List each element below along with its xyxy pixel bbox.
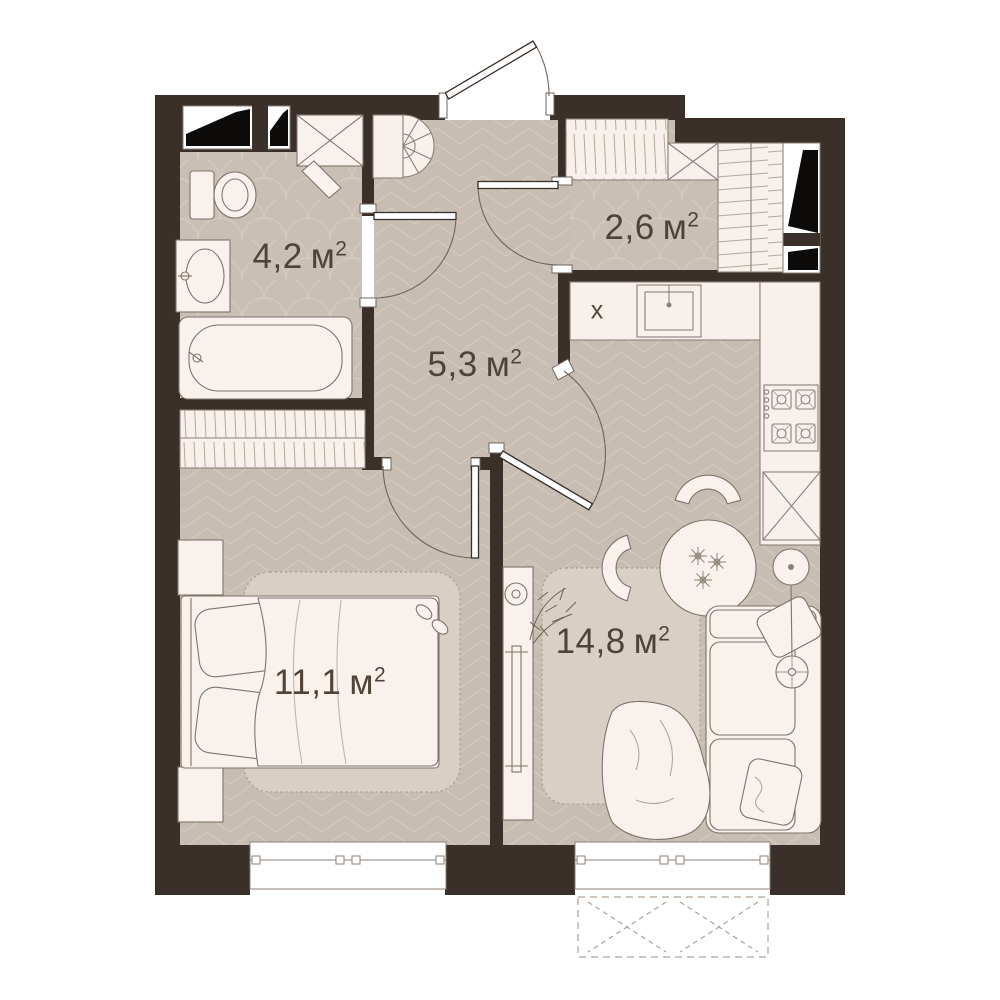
living-window-tick-2 — [660, 856, 668, 864]
wall-top-right — [675, 118, 845, 143]
wall-bath-bottom — [180, 398, 374, 411]
area-value: 2,6 — [605, 208, 655, 247]
hall-cabinet — [373, 115, 403, 178]
entry-door-arc — [535, 44, 549, 96]
bedroom-window-tick-2 — [336, 856, 344, 864]
wall-top-mid — [550, 95, 683, 120]
area-exponent: 2 — [374, 663, 386, 686]
area-exponent: 2 — [658, 622, 670, 645]
area-unit: м — [634, 622, 659, 661]
bedroom-window-tick-1 — [252, 856, 260, 864]
bedroom-door-leaf — [472, 466, 479, 558]
floor-plan-drawing — [0, 0, 1000, 1000]
wall-bottom-left — [155, 845, 250, 895]
area-value: 14,8 — [556, 622, 626, 661]
decor-disc-center — [512, 590, 520, 598]
wall-left — [155, 95, 180, 895]
bath-jamb-top — [360, 204, 376, 213]
area-exponent: 2 — [510, 345, 522, 368]
dining-table — [660, 520, 756, 616]
wall-bottom-mid — [445, 845, 575, 895]
wall-divider — [490, 452, 503, 845]
nightstand-bottom — [178, 767, 223, 822]
hanging-rail-hatch — [566, 119, 668, 180]
shaft-divider-2 — [783, 233, 820, 246]
entry-door-leaf — [445, 41, 536, 99]
living-window-tick-1 — [577, 856, 585, 864]
room-area-label-bedroom: 11,1м2 — [274, 663, 386, 703]
toilet-bowl-inner — [222, 179, 248, 211]
area-unit: м — [486, 345, 511, 384]
toilet-tank — [190, 171, 214, 219]
bedroom-window — [250, 842, 446, 889]
room-area-label-hallway: 5,3м2 — [428, 345, 523, 385]
living-window-tick-4 — [760, 856, 768, 864]
bath-jamb-bottom — [360, 298, 376, 307]
sink-faucet-knob — [667, 303, 672, 308]
balcony-outline — [578, 897, 768, 957]
sofa-pillow-bottom — [738, 757, 803, 827]
room-area-label-living: 14,8м2 — [556, 622, 671, 662]
floor-lamp-bulb — [788, 564, 794, 570]
area-value: 11,1 — [274, 663, 342, 702]
room-area-label-wardrobe: 2,6м2 — [605, 208, 700, 248]
area-value: 5,3 — [428, 345, 478, 384]
bedroom-window-tick-4 — [436, 856, 444, 864]
floor-lamp-base-center — [789, 669, 796, 676]
entry-jamb-right — [546, 93, 554, 115]
living-window — [575, 842, 770, 889]
wall-bath-upper — [362, 120, 374, 216]
shaft-divider-1 — [252, 104, 268, 151]
bedroom-window-tick-3 — [352, 856, 360, 864]
room-area-label-bathroom: 4,2м2 — [253, 237, 348, 277]
area-exponent: 2 — [335, 237, 347, 260]
floor-plan: 4,2м2 2,6м2 5,3м2 11,1м2 14,8м2 x — [0, 0, 1000, 1000]
wardrobe-jamb-bottom — [552, 265, 572, 273]
area-unit: м — [663, 208, 688, 247]
fridge-spot-mark: x — [591, 297, 604, 326]
nightstand-top — [178, 540, 223, 595]
area-value: 4,2 — [253, 237, 303, 276]
wall-bottom-right — [770, 845, 845, 895]
entry-jamb-left — [439, 93, 447, 118]
area-exponent: 2 — [687, 208, 699, 231]
living-window-tick-3 — [676, 856, 684, 864]
bedroom-wardrobe-hatch — [180, 410, 365, 468]
tv — [512, 646, 521, 772]
wardrobe-door-leaf — [478, 182, 558, 189]
area-unit: м — [349, 663, 374, 702]
area-unit: м — [311, 237, 336, 276]
balcony-dashed-box — [578, 897, 768, 957]
wall-right — [820, 118, 845, 895]
bathtub-inner — [189, 325, 342, 391]
bath-door-leaf — [374, 213, 456, 220]
